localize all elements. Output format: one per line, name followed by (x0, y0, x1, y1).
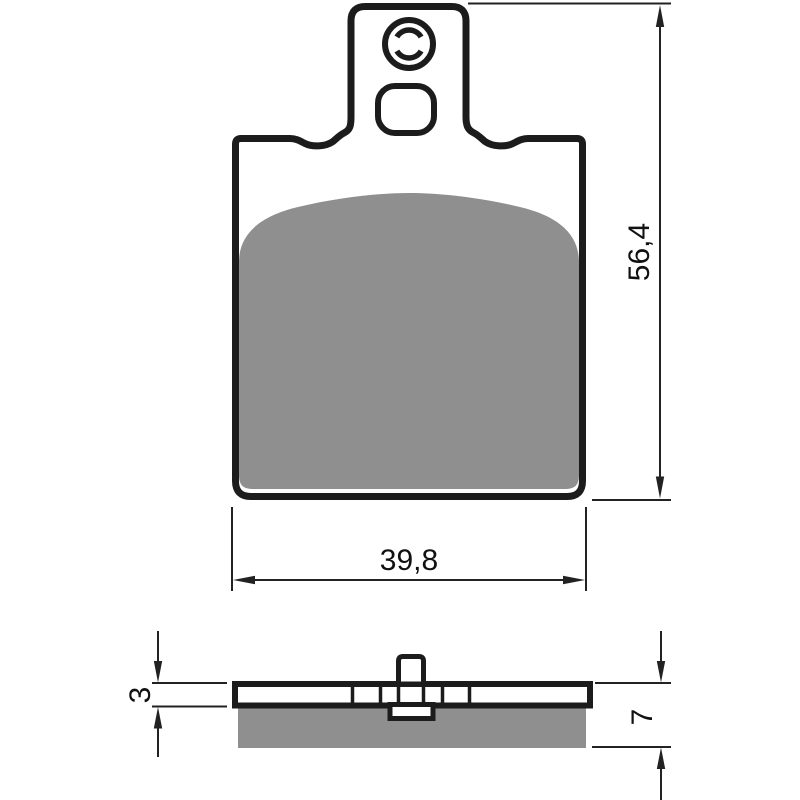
thickness3-arrow-up (154, 707, 162, 729)
dimension-width: 39,8 (232, 507, 586, 591)
height-dimension-label: 56,4 (623, 223, 656, 281)
thickness7-label: 7 (626, 709, 659, 726)
thickness3-arrow-down (154, 661, 162, 683)
pin-hole (385, 20, 433, 68)
width-arrow-left (233, 576, 255, 584)
height-arrow-up (656, 5, 664, 27)
dimension-total-thickness: 7 (592, 631, 671, 800)
thickness7-arrow-down (657, 661, 665, 683)
backplate-notch (390, 705, 433, 719)
technical-drawing: 56,4 39,8 3 7 (0, 0, 800, 800)
slot-hole (378, 86, 434, 133)
thickness7-arrow-up (657, 748, 665, 770)
side-view (235, 657, 590, 749)
width-dimension-label: 39,8 (380, 544, 438, 577)
locating-pin (399, 657, 424, 685)
height-arrow-down (656, 477, 664, 499)
friction-material-front (239, 193, 579, 489)
dimension-backplate-thickness: 3 (124, 631, 227, 757)
thickness3-label: 3 (124, 687, 157, 704)
front-view (236, 7, 583, 497)
width-arrow-right (563, 576, 585, 584)
